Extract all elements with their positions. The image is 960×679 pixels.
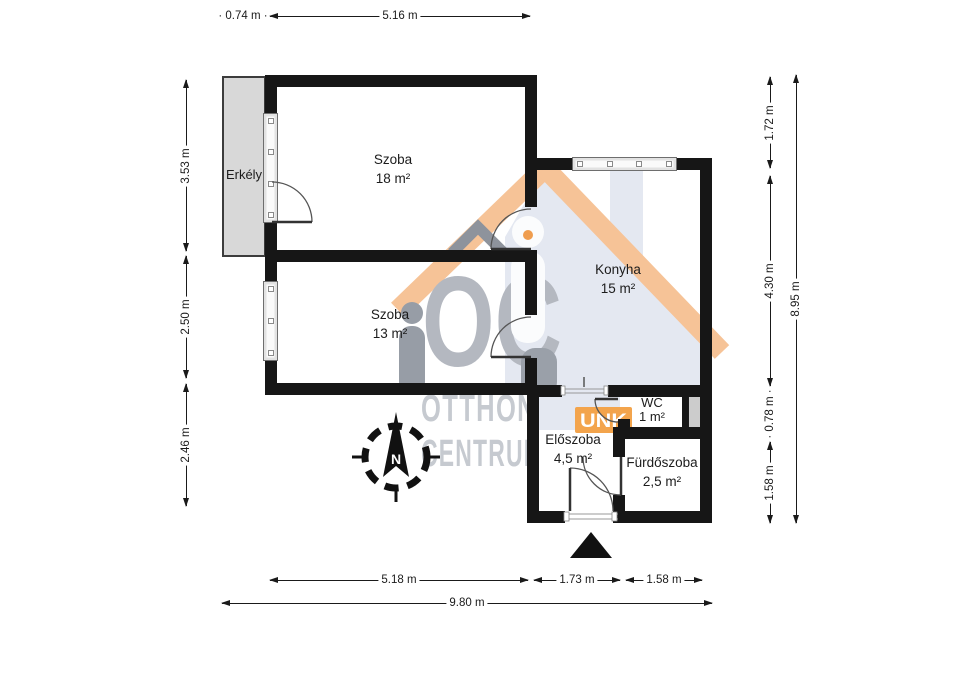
room-label-szoba-13: Szoba 13 m² (310, 305, 470, 343)
room-area: 2,5 m² (582, 472, 742, 491)
room-name: Előszoba (493, 430, 653, 449)
room-name: Fürdőszoba (582, 453, 742, 472)
room-name: Szoba (310, 305, 470, 324)
dimension-bottom-2: 1.73 m (534, 572, 620, 588)
dimension-top-room: 5.16 m (270, 8, 530, 24)
dimension-top-balcony: 0.74 m (216, 8, 270, 24)
door-arc (491, 209, 531, 249)
door-arc (491, 317, 531, 357)
threshold-end (604, 386, 608, 395)
room-name: Szoba (313, 150, 473, 169)
dimension-bottom-total: 9.80 m (222, 595, 712, 611)
room-label-konyha: Konyha 15 m² (538, 260, 698, 298)
room-area: 18 m² (313, 169, 473, 188)
dimension-right-4: 1.58 m (762, 442, 778, 523)
room-area: 15 m² (538, 279, 698, 298)
room-area: 13 m² (310, 324, 470, 343)
compass-north-label: N (391, 451, 401, 467)
compass-needle (383, 412, 409, 477)
room-name: Konyha (538, 260, 698, 279)
room-label-szoba-18: Szoba 18 m² (313, 150, 473, 188)
dimension-left-2: 2.50 m (178, 256, 194, 378)
room-name: WC (602, 396, 702, 410)
room-area: 1 m² (602, 410, 702, 424)
dimension-left-3: 2.46 m (178, 384, 194, 506)
door-arc (272, 182, 312, 222)
dimension-bottom-1: 5.18 m (270, 572, 528, 588)
dimension-left-1: 3.53 m (178, 80, 194, 251)
compass-rose: N (340, 400, 452, 518)
dimension-right-3: 0.78 m (762, 386, 778, 442)
dimension-right-2: 4.30 m (762, 176, 778, 386)
room-label-furdoszoba: Fürdőszoba 2,5 m² (582, 453, 742, 491)
threshold-end (564, 512, 569, 521)
entrance-arrow-icon (570, 532, 612, 558)
dimension-right-total: 8.95 m (788, 75, 804, 523)
dimension-bottom-3: 1.58 m (626, 572, 702, 588)
threshold-end (612, 512, 617, 521)
floorplan-canvas: OC OTTHON CENTRUM UNK (0, 0, 960, 679)
threshold-end (561, 386, 565, 395)
dimension-right-1: 1.72 m (762, 77, 778, 168)
room-label-erkely: Erkély (204, 167, 284, 182)
room-label-wc: WC 1 m² (602, 396, 702, 424)
